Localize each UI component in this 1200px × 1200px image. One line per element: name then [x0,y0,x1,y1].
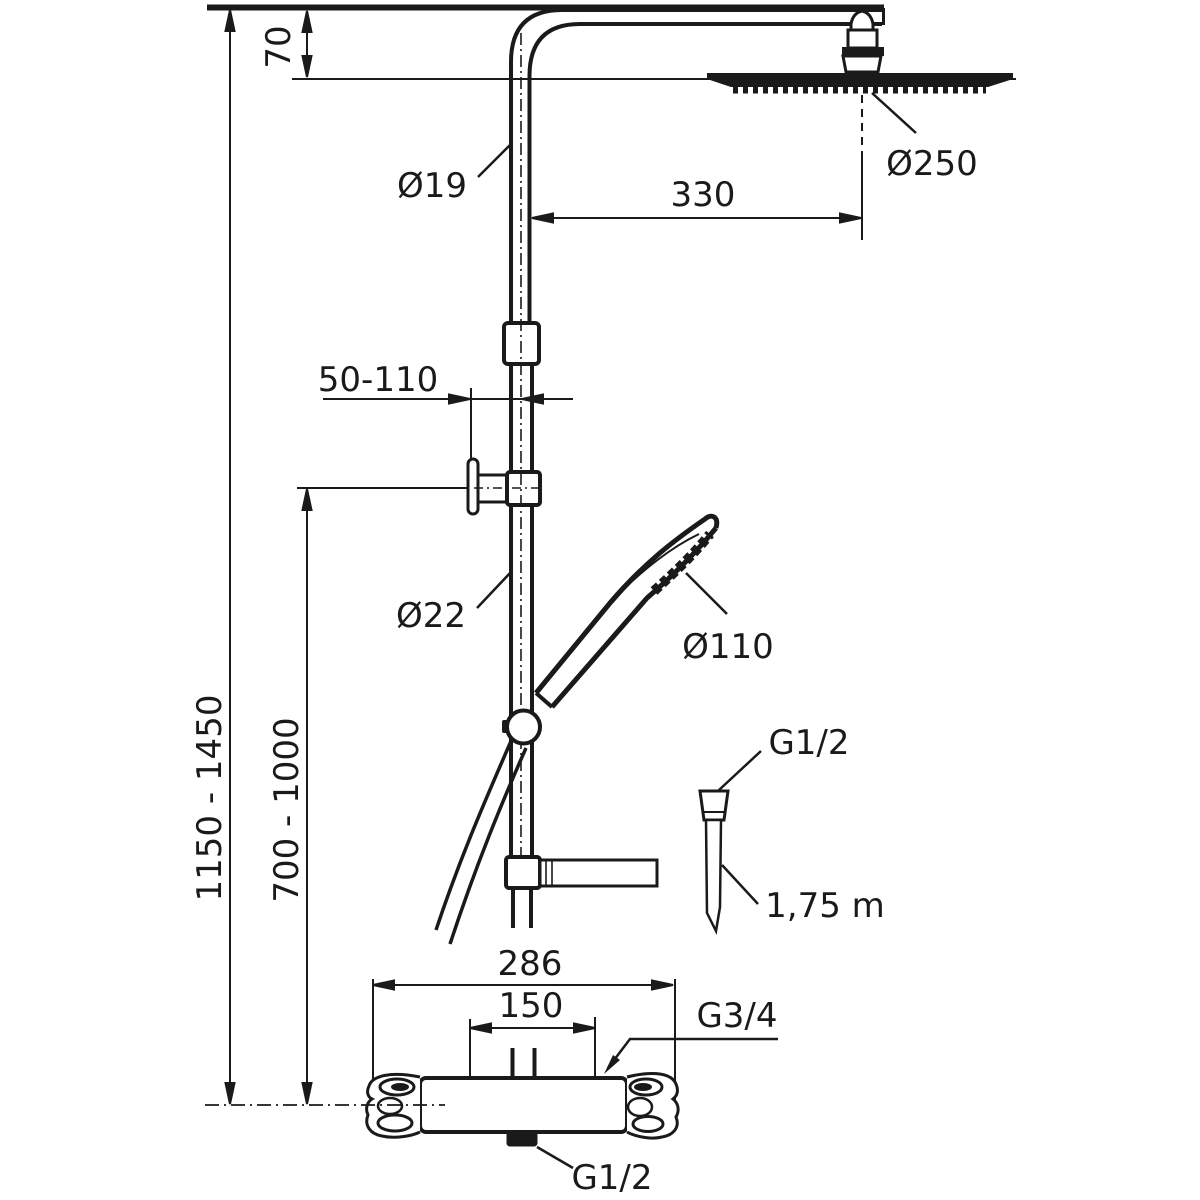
label-hose-thread: G1/2 [768,723,849,763]
arrow-up [226,10,235,31]
dimension-lines [226,10,862,1104]
technical-drawing-canvas: 70 1150 - 1450 700 - 1000 Ø19 330 Ø250 5… [0,0,1200,1200]
label-pipe-upper-diameter: Ø19 [397,166,467,206]
valve-right-grip-lower [633,1117,663,1132]
hose-fitting [700,791,728,931]
riser-pipe [511,8,884,928]
hand-shower-holder-knob [507,711,540,744]
head-connector-neck [848,30,877,48]
pipe-inner-edge-upper [530,24,883,323]
label-outlet-thread: G1/2 [571,1158,652,1198]
label-ceiling-to-head: 70 [259,25,299,68]
label-pipe-lower-diameter: Ø22 [396,596,466,636]
leader-hand-shower-diameter [686,573,727,614]
leader-hose-thread [719,751,761,790]
shelf-clamp [506,857,540,888]
leader-pipe-lower-diameter [477,572,511,608]
mixer-valve [367,1048,679,1146]
valve-right-handle [627,1073,678,1138]
leader-outlet-thread [537,1147,573,1168]
leader-head-diameter [872,93,916,133]
hand-shower-face-edge [552,528,716,707]
arrow-left [522,395,543,404]
label-head-offset: 330 [671,175,736,215]
arrow-right [652,981,673,990]
valve-left-grip-mid [378,1098,402,1114]
arrow-down [303,1083,312,1104]
hand-shower-handle-end [536,693,552,707]
label-bracket-height: 700 - 1000 [267,717,307,902]
arrow-left [373,981,394,990]
leader-pipe-upper-diameter [478,143,512,177]
arrow-right [449,395,470,404]
arrow-right [574,1024,595,1033]
leader-inlet-thread [608,1039,778,1068]
wall-bracket [468,459,540,514]
hose-fitting-nut [700,791,728,820]
shelf-bar [540,860,657,886]
arrow-left [532,214,553,223]
label-bracket-reach: 50-110 [318,360,438,400]
valve-right-grip-mid [628,1098,652,1116]
label-head-diameter: Ø250 [886,144,978,184]
hose-outer-line [436,741,511,930]
hand-shower [536,516,717,707]
label-hand-shower-diameter: Ø110 [682,627,774,667]
arrow-up [303,489,312,510]
label-inlet-centres: 150 [499,986,564,1026]
valve-right-grip-upper-dark [634,1083,652,1091]
arrow-down [226,1083,235,1104]
arrow-down [303,56,312,77]
label-mixer-width: 286 [498,944,563,984]
valve-body [420,1078,627,1132]
valve-outlet [507,1132,537,1146]
arrow-right [840,214,861,223]
label-hose-length: 1,75 m [765,886,885,926]
leader-hose-length [722,865,758,904]
valve-left-grip-lower [378,1115,412,1131]
head-connector-dome [851,11,873,31]
arrow-up [303,11,312,32]
arrow-inlet-thread [604,1055,620,1074]
dimension-labels: 70 1150 - 1450 700 - 1000 Ø19 330 Ø250 5… [190,25,978,1198]
shower-head-disc [707,73,1013,87]
shelf [506,857,657,888]
valve-left-grip-upper-dark [391,1083,409,1091]
arrow-left [470,1024,491,1033]
label-inlet-thread: G3/4 [696,996,777,1036]
head-connector-taper [843,56,881,72]
shower-system-diagram: 70 1150 - 1450 700 - 1000 Ø19 330 Ø250 5… [0,0,1200,1200]
label-total-height: 1150 - 1450 [190,695,230,902]
hose-fitting-tail [706,820,721,931]
